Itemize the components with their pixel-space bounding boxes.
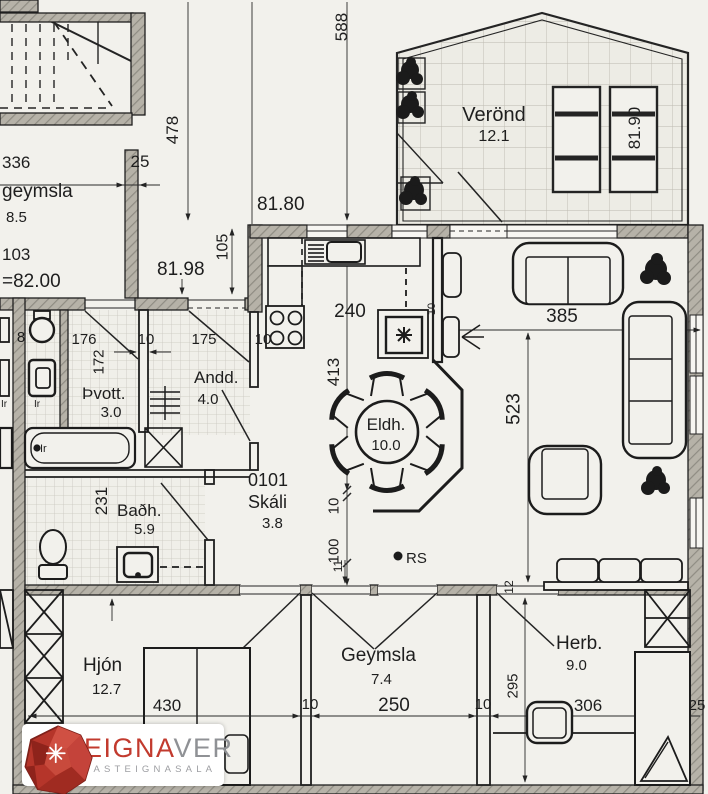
dim-413: 413 <box>324 358 343 386</box>
dim-10-fridge: 10 <box>426 303 438 315</box>
sofa-two-seat <box>513 243 623 304</box>
dim-336: 336 <box>2 153 30 172</box>
dim-8: 8 <box>17 329 25 346</box>
room-hjon-area: 12.7 <box>92 681 121 698</box>
eignaver-gem-icon <box>22 724 94 794</box>
dim-306: 306 <box>574 696 602 715</box>
room-verond-name: Verönd <box>462 104 525 126</box>
level-8198: 81.98 <box>157 259 205 280</box>
room-andd-area: 4.0 <box>198 391 219 408</box>
room-eldh-area: 10.0 <box>371 437 400 454</box>
kitchen-sink <box>305 240 365 264</box>
ir-marker-a: Ir <box>1 399 8 410</box>
dim-10-kitchen: 10 <box>255 331 272 348</box>
ir-marker-c: Ir <box>40 443 47 455</box>
room-thvott-area: 3.0 <box>101 404 122 421</box>
brand-tagline: FASTEIGNASALA <box>84 765 234 775</box>
floorplan-sheet: 336 25 geymsla 8.5 103 =82.00 478 588 81… <box>0 0 708 794</box>
dim-25-top: 25 <box>131 152 150 171</box>
room-badh-name: Baðh. <box>117 501 161 520</box>
freezer-star-icon <box>396 327 412 343</box>
room-herb-area: 9.0 <box>566 657 587 674</box>
dim-295: 295 <box>504 673 521 698</box>
dim-11: 11 <box>331 559 345 572</box>
room-thvott-name: Þvott. <box>82 384 125 403</box>
rs-marker-label: RS <box>406 550 427 567</box>
room-andd-name: Andd. <box>194 368 238 387</box>
rs-marker-dot <box>394 552 403 561</box>
veranda <box>397 13 688 225</box>
single-bed <box>635 652 690 785</box>
bench-sideboard <box>544 559 688 590</box>
agency-logo: EIGNAVER FASTEIGNASALA <box>22 724 224 786</box>
room-skali-unit: 0101 <box>248 470 288 490</box>
room-skali-area: 3.8 <box>262 515 283 532</box>
room-eldh-name: Eldh. <box>367 415 406 434</box>
dim-25-right: 25 <box>689 697 706 714</box>
dim-176: 176 <box>71 331 96 348</box>
dim-231: 231 <box>92 487 111 515</box>
dim-100: 100 <box>325 538 342 563</box>
room-skali-name: Skáli <box>248 492 287 512</box>
room-geymsla-area: 7.4 <box>371 671 392 688</box>
room-hjon-name: Hjón <box>83 655 122 676</box>
floorplan-drawing: 336 25 geymsla 8.5 103 =82.00 478 588 81… <box>0 0 708 794</box>
right-wall-windows <box>690 315 703 548</box>
room-badh-area: 5.9 <box>134 521 155 538</box>
armchair <box>529 446 601 514</box>
toilet <box>39 530 67 579</box>
level-8190: 81.90 <box>625 107 644 150</box>
room-verond-area: 12.1 <box>478 128 509 145</box>
dim-10-right: 10 <box>475 696 492 713</box>
brand-secondary: VER <box>174 733 234 763</box>
sofa-three-seat <box>623 302 686 458</box>
brand-primary: EIGNA <box>84 733 174 763</box>
room-upper-geymsla-area: 8.5 <box>6 209 27 226</box>
logo-text: EIGNAVER FASTEIGNASALA <box>84 735 234 775</box>
dim-478: 478 <box>163 116 182 144</box>
ir-marker-b: Ir <box>34 399 41 410</box>
dim-250: 250 <box>378 695 410 716</box>
room-upper-geymsla-code: 103 <box>2 245 30 264</box>
stove <box>266 306 304 348</box>
level-8180: 81.80 <box>257 194 305 215</box>
room-upper-geymsla-name: geymsla <box>2 181 73 202</box>
dim-172: 172 <box>90 349 107 374</box>
dim-12: 12 <box>502 580 516 594</box>
dim-523: 523 <box>504 393 525 425</box>
brand-wordmark: EIGNAVER <box>84 735 234 762</box>
dim-430: 430 <box>153 696 181 715</box>
dim-10-left: 10 <box>302 696 319 713</box>
dim-105: 105 <box>215 234 232 261</box>
dim-10-hall: 10 <box>138 331 155 348</box>
dim-588: 588 <box>332 13 351 41</box>
room-herb-name: Herb. <box>556 633 602 654</box>
dim-175: 175 <box>191 331 216 348</box>
room-upper-geymsla-level: =82.00 <box>2 271 61 292</box>
room-geymsla-name: Geymsla <box>341 645 416 666</box>
dim-10-skali: 10 <box>325 498 342 515</box>
dim-385: 385 <box>546 306 578 327</box>
dim-240: 240 <box>334 301 366 322</box>
